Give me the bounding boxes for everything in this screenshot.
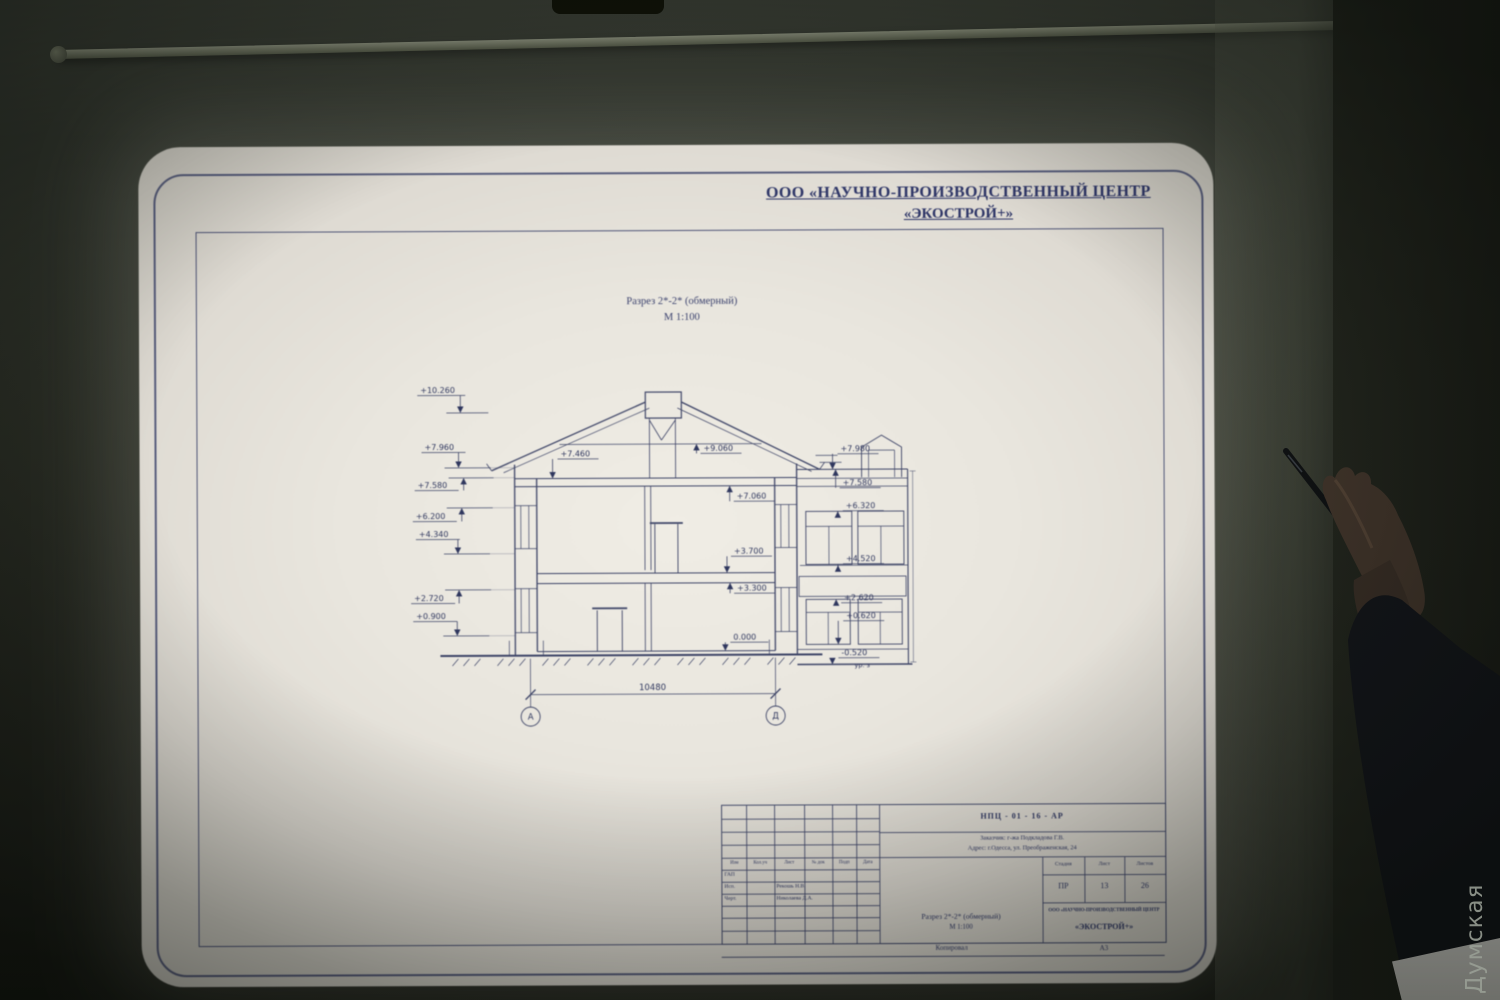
- elevation-mark-label: +7.460: [560, 449, 590, 458]
- address-line: Адрес: г.Одесса, ул. Преображенская, 24: [879, 844, 1165, 852]
- elevation-mark-label: -0.520: [841, 648, 867, 657]
- watermark: Думская: [1462, 882, 1488, 994]
- col-ndok: № док: [804, 860, 832, 865]
- stamp-org-line2: «ЭКОСТРОЙ+»: [1044, 922, 1165, 932]
- elevation-mark-label: +2.620: [844, 593, 874, 602]
- document-code: НПЦ - 01 - 16 - АР: [879, 811, 1165, 821]
- elevation-mark-label: +7.960: [424, 443, 454, 452]
- stage-value: ПР: [1042, 881, 1084, 890]
- screen-mount: [552, 0, 664, 14]
- format-label: А3: [1100, 944, 1109, 952]
- stage-label: Стадия: [1042, 861, 1084, 867]
- elevation-mark-label: +7.980: [840, 444, 870, 453]
- elevation-mark-label: +0.620: [846, 611, 876, 620]
- curtain-rod-cap: [50, 46, 67, 63]
- elevation-mark-label: 0.000: [733, 633, 756, 642]
- sheet-value: 13: [1084, 881, 1124, 890]
- dimension-value: 10480: [639, 683, 666, 693]
- elevation-mark-label: +3.300: [737, 584, 767, 593]
- stamp-org-line1: ООО «НАУЧНО-ПРОИЗВОДСТВЕННЫЙ ЦЕНТР: [1044, 908, 1165, 915]
- staff-role: ГАП: [724, 872, 772, 878]
- elevation-mark-label: +4.340: [419, 530, 449, 539]
- elevation-mark-label: +9.060: [703, 444, 733, 453]
- elevation-mark-label: +4.520: [846, 554, 876, 563]
- presenter-hand: [1240, 400, 1500, 1000]
- sheet-label: Лист: [1084, 861, 1124, 867]
- left-elevation-marks: +10.260 +7.960 +7.580 +6.200 +4.340 +2.7…: [410, 386, 494, 636]
- staff-role: Черт.: [724, 896, 772, 902]
- col-list: Лист: [774, 860, 804, 865]
- copied-label: Копировал: [902, 944, 1002, 952]
- stamp-drawing-title: Разрез 2*-2* (обмерный): [880, 911, 1043, 921]
- elevation-mark-label: +7.580: [843, 478, 873, 487]
- pen-highlight: [1288, 455, 1302, 472]
- chimney: [645, 392, 681, 418]
- col-data: Дата: [856, 860, 879, 865]
- staff-name: Николаева Д.А.: [776, 895, 856, 901]
- staff-role: Исп.: [724, 884, 772, 890]
- sheets-value: 26: [1124, 881, 1165, 890]
- elevation-mark-label: +10.260: [420, 386, 455, 395]
- col-koluch: Кол.уч: [746, 861, 774, 866]
- elevation-mark-label: +3.700: [734, 547, 764, 556]
- elevation-mark-label: +2.720: [414, 594, 444, 603]
- col-podp: Подп: [832, 860, 856, 865]
- title-block: Изм Кол.уч Лист № док Подп Дата ГАП Исп.…: [721, 803, 1167, 945]
- sheets-label: Листов: [1124, 861, 1165, 867]
- elevation-mark-label: +7.060: [737, 492, 767, 501]
- facade-wing: [796, 435, 916, 665]
- col-izm: Изм: [722, 861, 746, 866]
- elevation-mark-label: +7.580: [418, 481, 448, 490]
- elevation-mark-label: +6.320: [846, 501, 876, 510]
- customer-line: Заказчик: г-жа Подкладова Г.В.: [879, 834, 1165, 842]
- ground-level-label: ур. з: [854, 661, 870, 669]
- dimension-line: 10480 А Д: [521, 658, 785, 727]
- projected-drawing-sheet: ООО «НАУЧНО-ПРОИЗВОДСТВЕННЫЙ ЦЕНТР «ЭКОС…: [138, 143, 1217, 988]
- staff-name: Рекошь Н.В.: [776, 883, 856, 889]
- axis-label-left: А: [528, 713, 534, 723]
- elevation-mark-label: +0.900: [416, 612, 446, 621]
- stamp-drawing-scale: М 1:100: [880, 923, 1043, 931]
- house-section: [439, 391, 825, 666]
- projection-room-photo: ООО «НАУЧНО-ПРОИЗВОДСТВЕННЫЙ ЦЕНТР «ЭКОС…: [0, 0, 1500, 1000]
- elevation-mark-label: +6.200: [416, 512, 446, 521]
- interior-elevation-marks: +7.460 +9.060 +7.060 +3.700 +3.300 0.000: [549, 444, 775, 652]
- axis-label-right: Д: [772, 712, 779, 722]
- dormer: [861, 435, 901, 477]
